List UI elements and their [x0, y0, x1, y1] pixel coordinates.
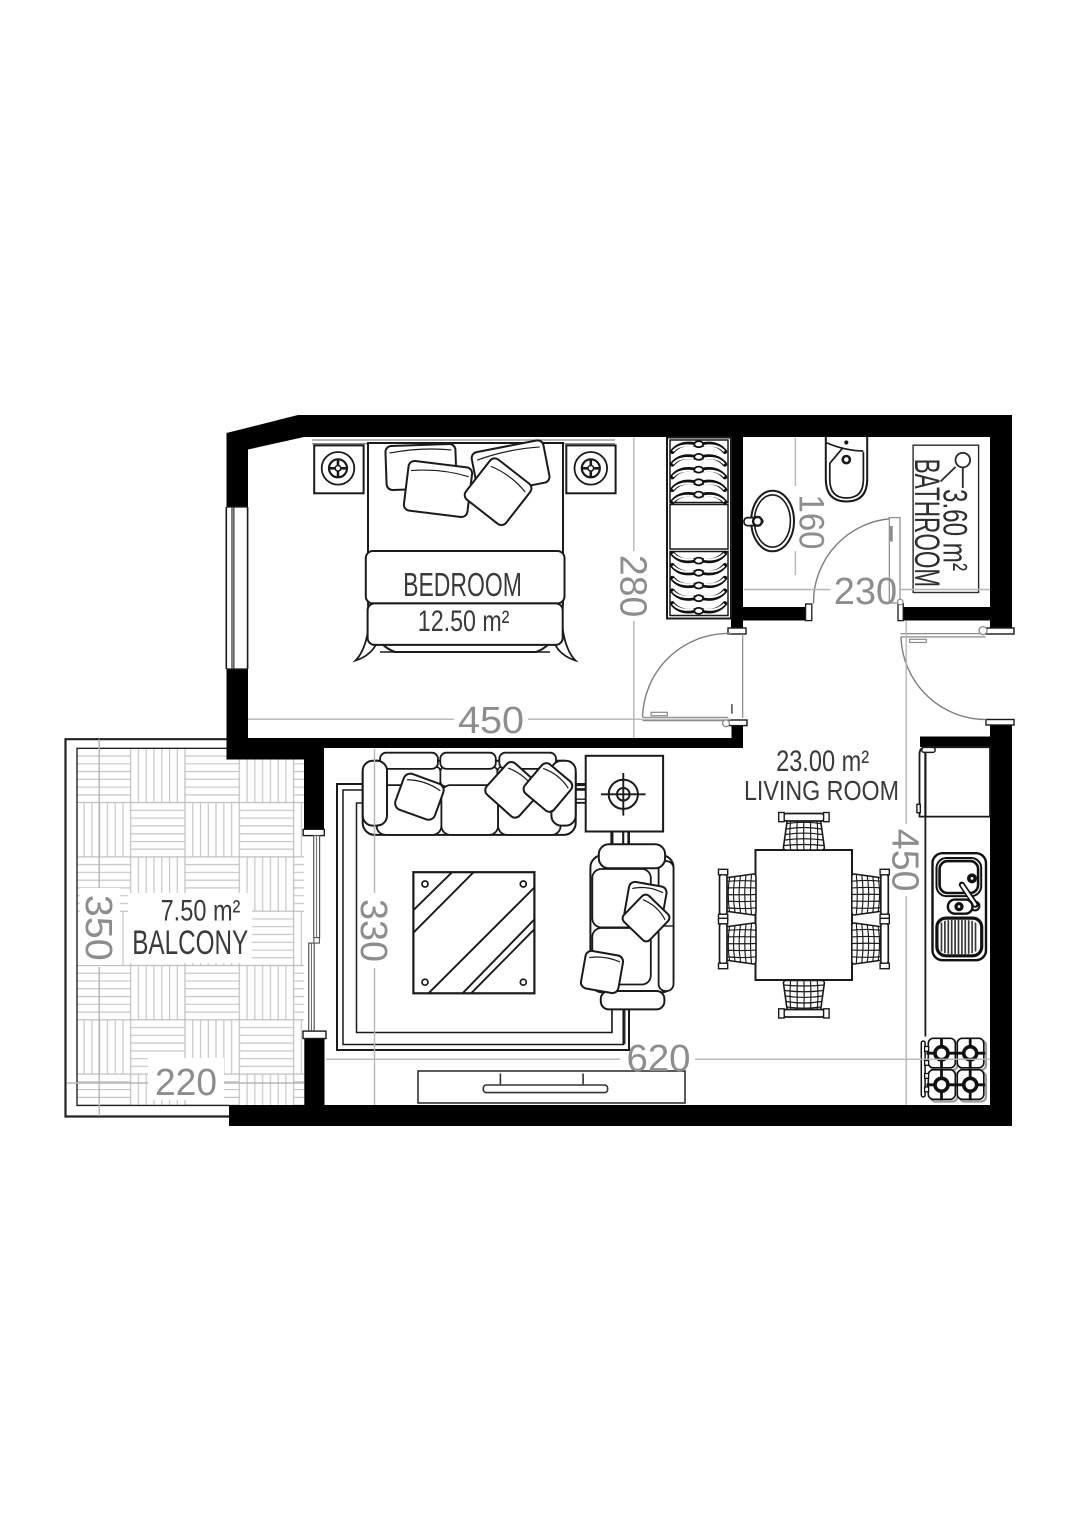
- svg-text:7.50 m²: 7.50 m²: [161, 894, 241, 927]
- svg-text:280: 280: [612, 555, 654, 617]
- svg-text:330: 330: [352, 899, 394, 962]
- svg-text:220: 220: [155, 1062, 217, 1104]
- svg-text:23.00 m²: 23.00 m²: [776, 745, 869, 778]
- svg-text:450: 450: [884, 829, 926, 892]
- svg-text:450: 450: [458, 700, 524, 742]
- svg-text:620: 620: [627, 1038, 691, 1080]
- svg-text:350: 350: [77, 895, 119, 961]
- svg-text:BEDROOM: BEDROOM: [403, 566, 522, 603]
- svg-text:160: 160: [792, 495, 831, 550]
- svg-text:BALCONY: BALCONY: [132, 924, 248, 962]
- svg-text:12.50 m²: 12.50 m²: [418, 605, 510, 638]
- svg-text:BATHROOM: BATHROOM: [907, 459, 946, 588]
- svg-text:LIVING ROOM: LIVING ROOM: [744, 775, 899, 806]
- svg-text:230: 230: [834, 571, 897, 613]
